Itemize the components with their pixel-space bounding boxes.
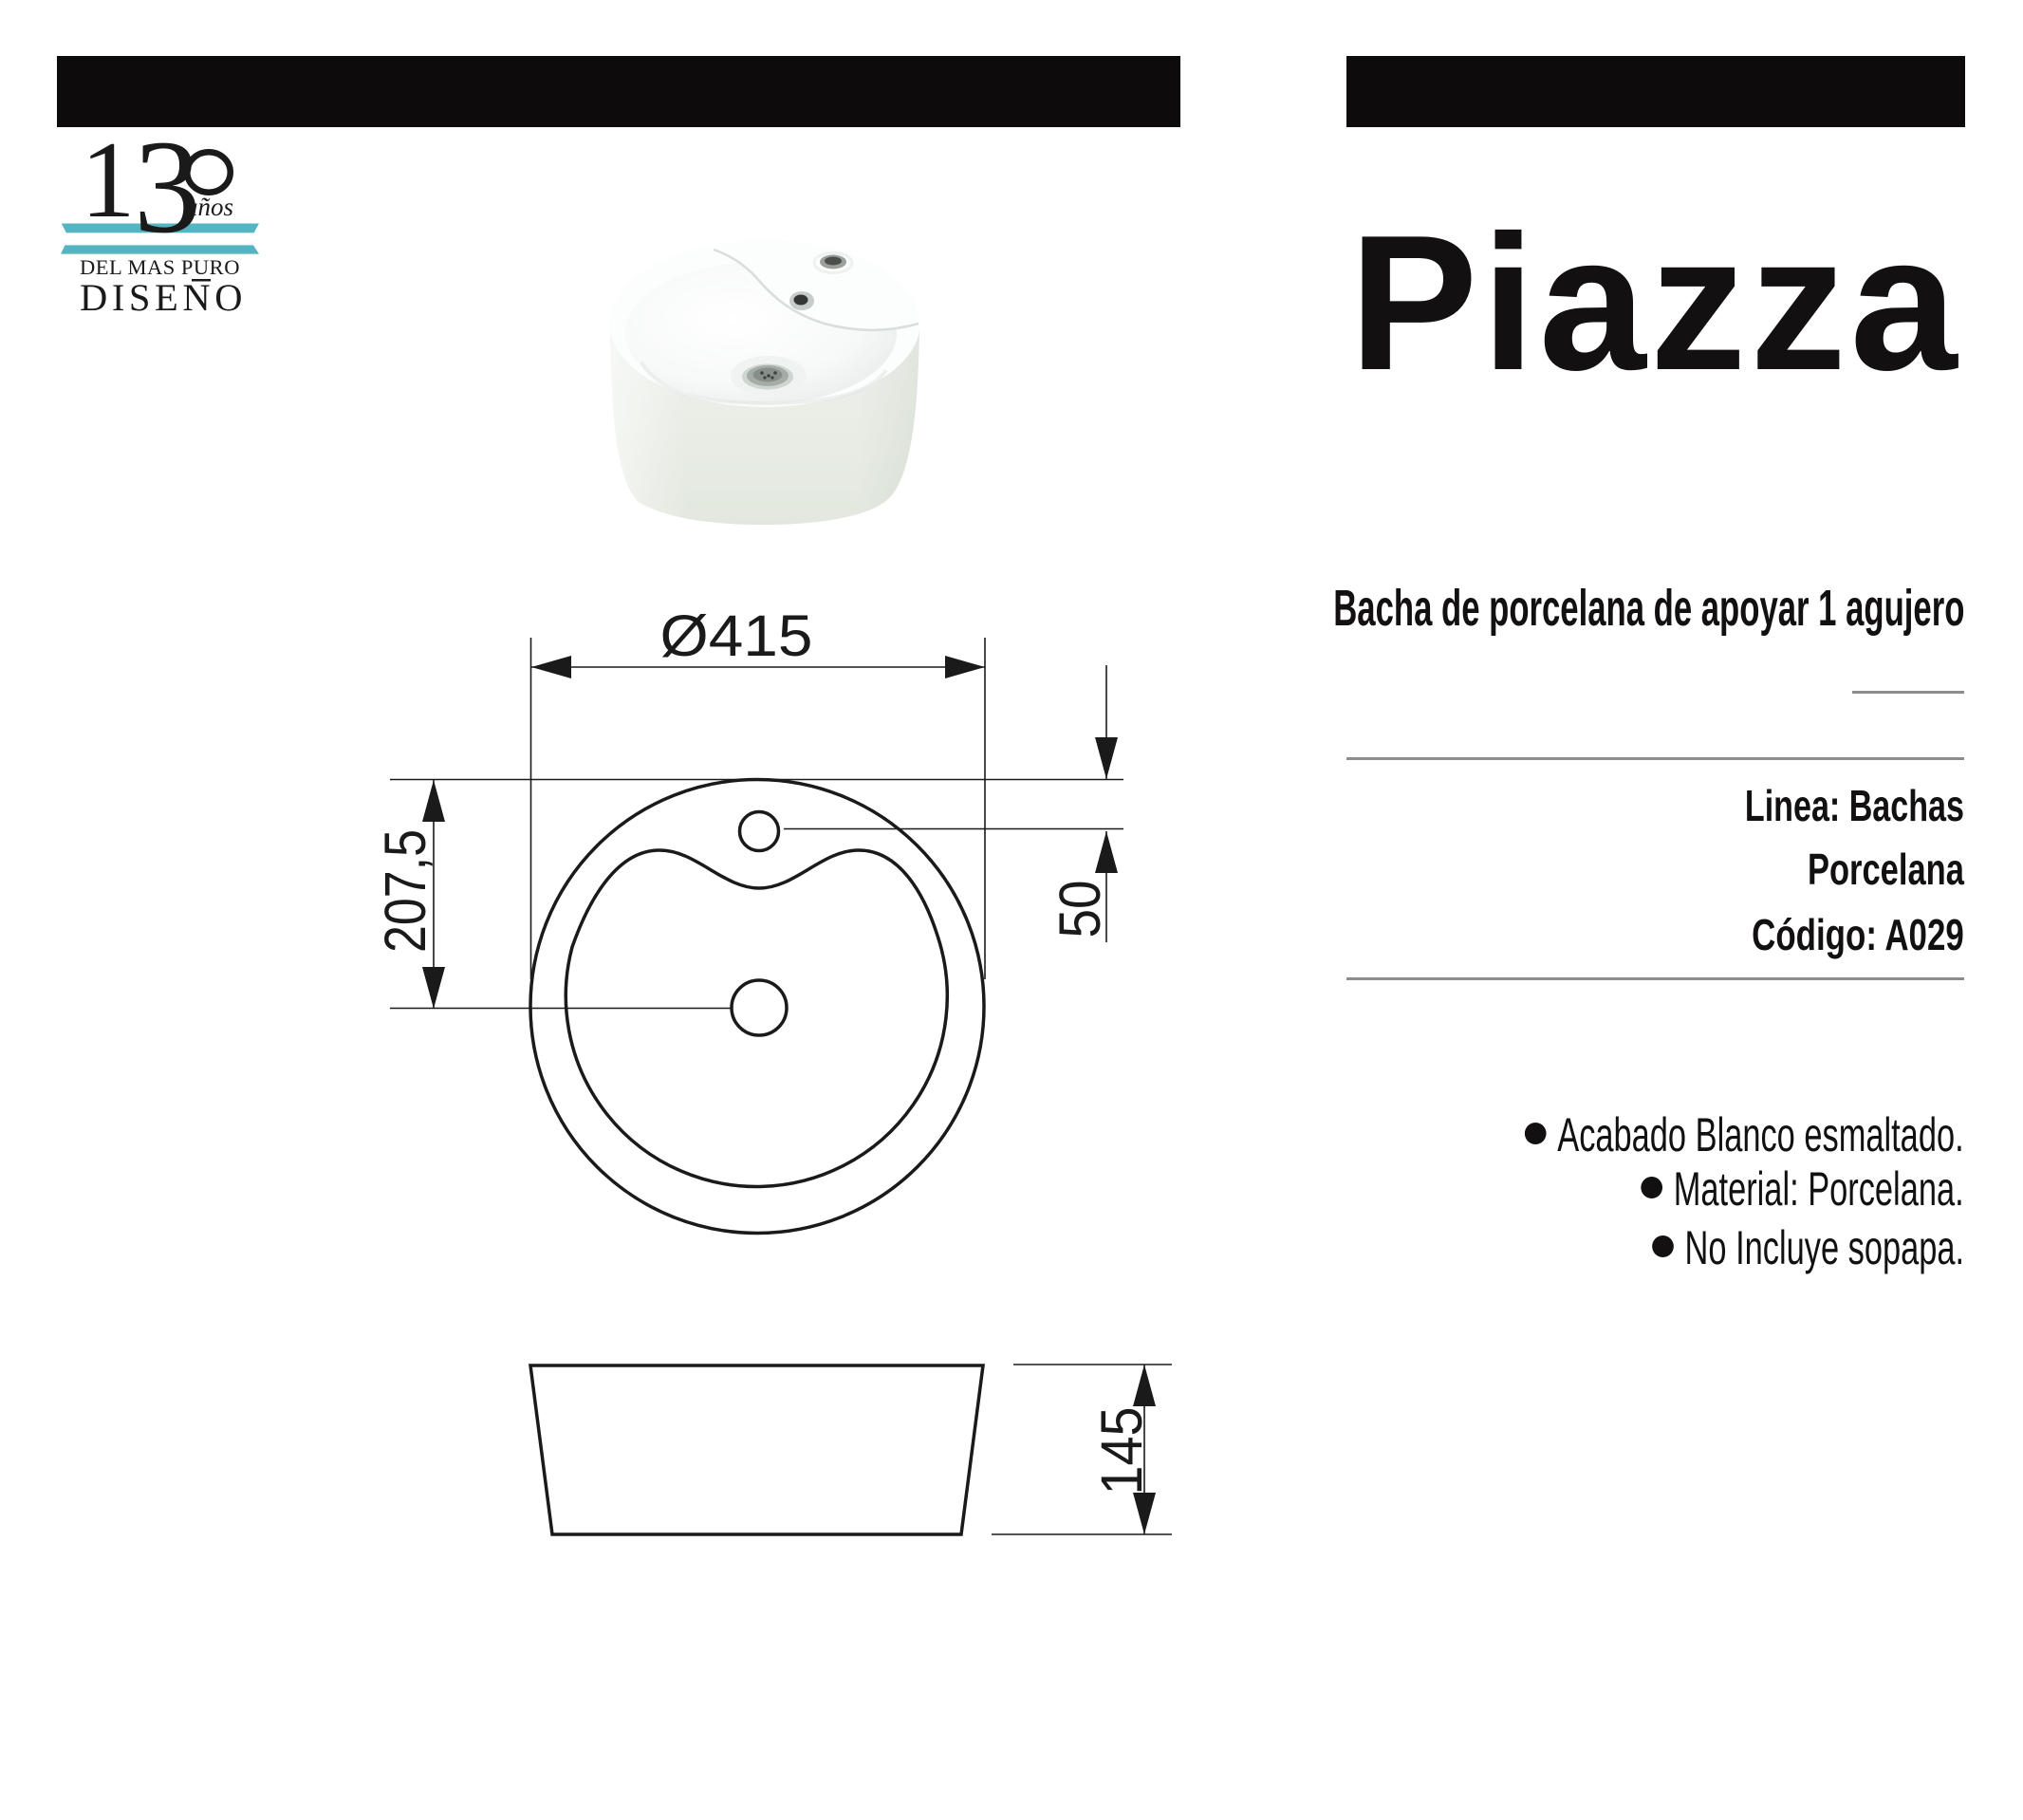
svg-text:207,5: 207,5 <box>373 829 437 953</box>
svg-text:Ø415: Ø415 <box>660 604 813 668</box>
svg-text:50: 50 <box>1048 881 1112 938</box>
svg-text:145: 145 <box>1089 1407 1154 1495</box>
